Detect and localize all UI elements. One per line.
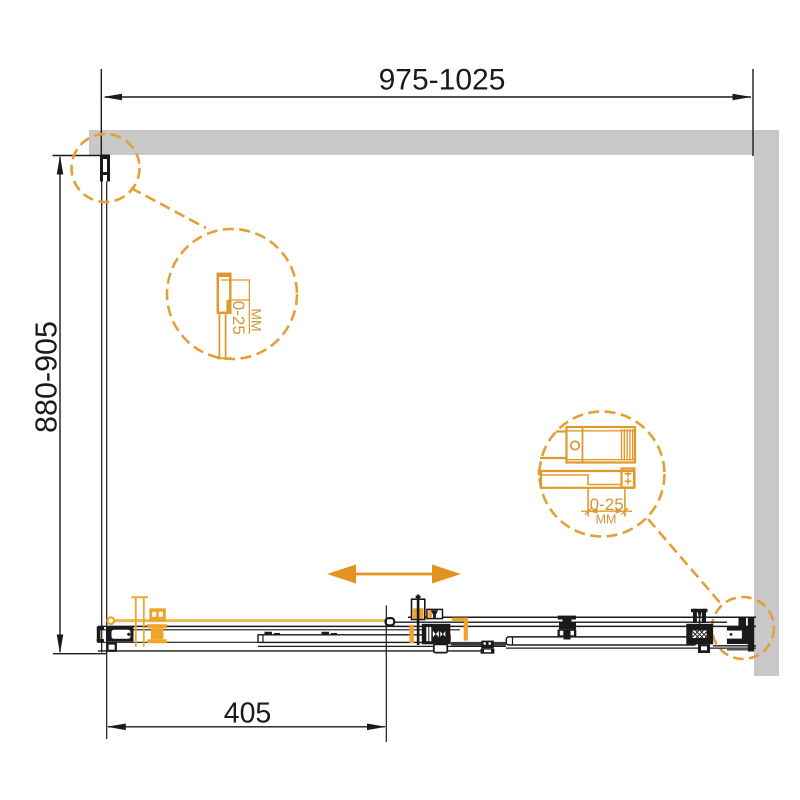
svg-text:405: 405: [224, 698, 272, 730]
svg-text:MM: MM: [596, 513, 617, 527]
svg-text:975-1025: 975-1025: [379, 64, 506, 97]
svg-text:0-25: 0-25: [229, 301, 248, 335]
svg-text:MM: MM: [248, 308, 264, 331]
svg-text:880-905: 880-905: [30, 321, 64, 433]
svg-text:0-25: 0-25: [590, 495, 624, 514]
